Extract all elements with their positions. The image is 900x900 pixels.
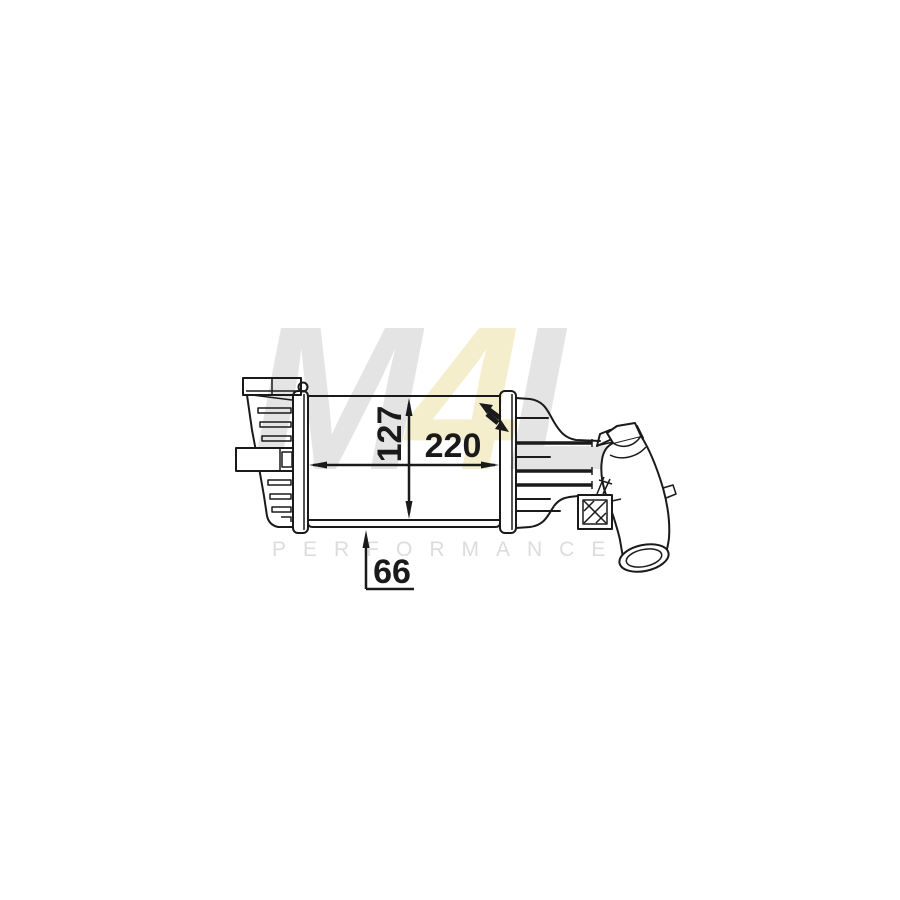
airflow-direction-icon — [479, 403, 509, 432]
dim-label-220: 220 — [425, 427, 482, 465]
dimension-height-127: 127 — [371, 398, 413, 519]
dim-label-66: 66 — [373, 553, 411, 591]
dimension-depth-66: 66 — [363, 530, 415, 591]
inlet-stub-pipe — [236, 448, 293, 471]
top-left-bracket — [243, 378, 308, 400]
right-header-plate — [500, 391, 516, 533]
left-header-plate — [293, 391, 308, 533]
dim-label-127: 127 — [371, 406, 409, 463]
intercooler-technical-drawing: 127 220 66 — [0, 0, 900, 900]
product-image-canvas: M4L PERFORMANCE — [0, 0, 900, 900]
